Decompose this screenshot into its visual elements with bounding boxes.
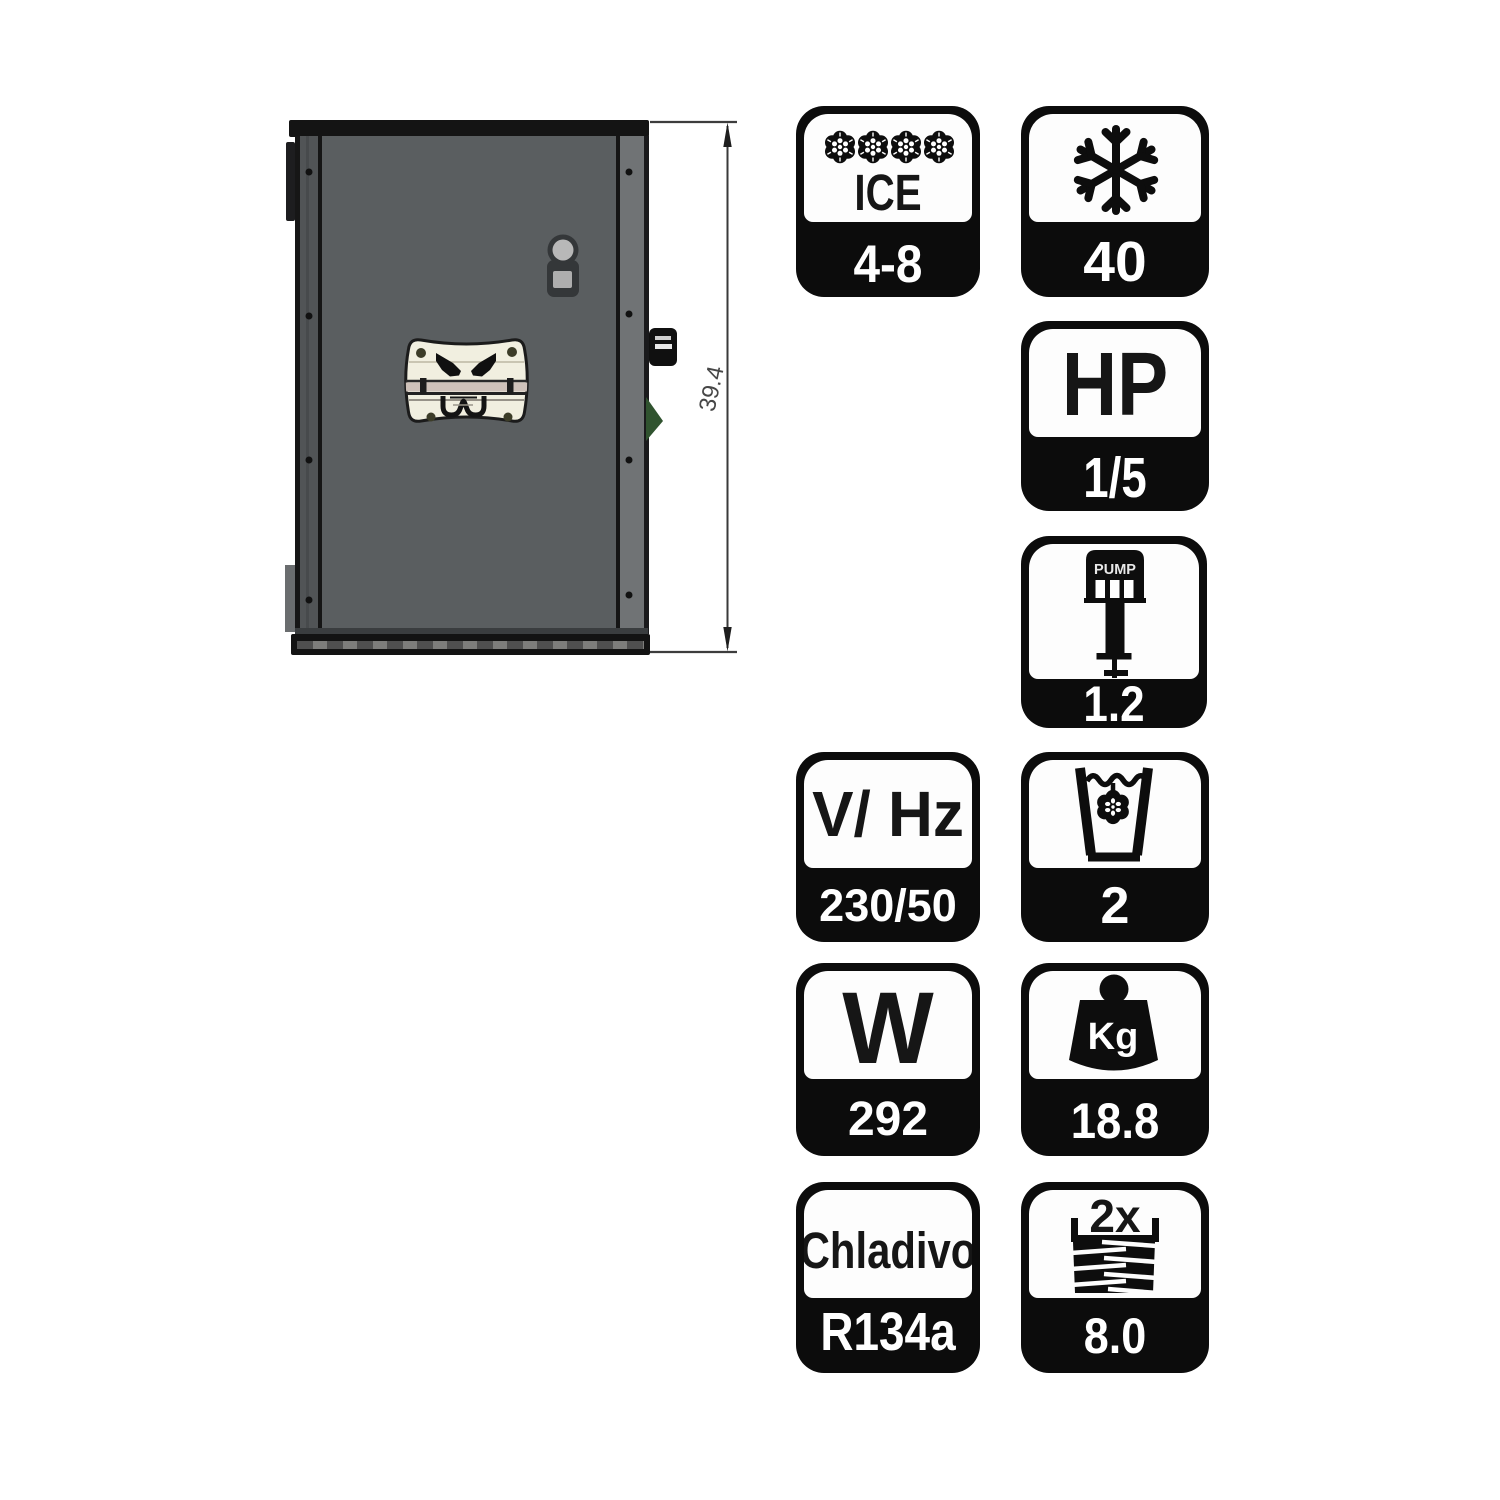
svg-text:Kg: Kg xyxy=(1088,1016,1139,1058)
svg-text:39.4: 39.4 xyxy=(694,364,729,414)
svg-text:PUMP: PUMP xyxy=(1094,562,1136,578)
